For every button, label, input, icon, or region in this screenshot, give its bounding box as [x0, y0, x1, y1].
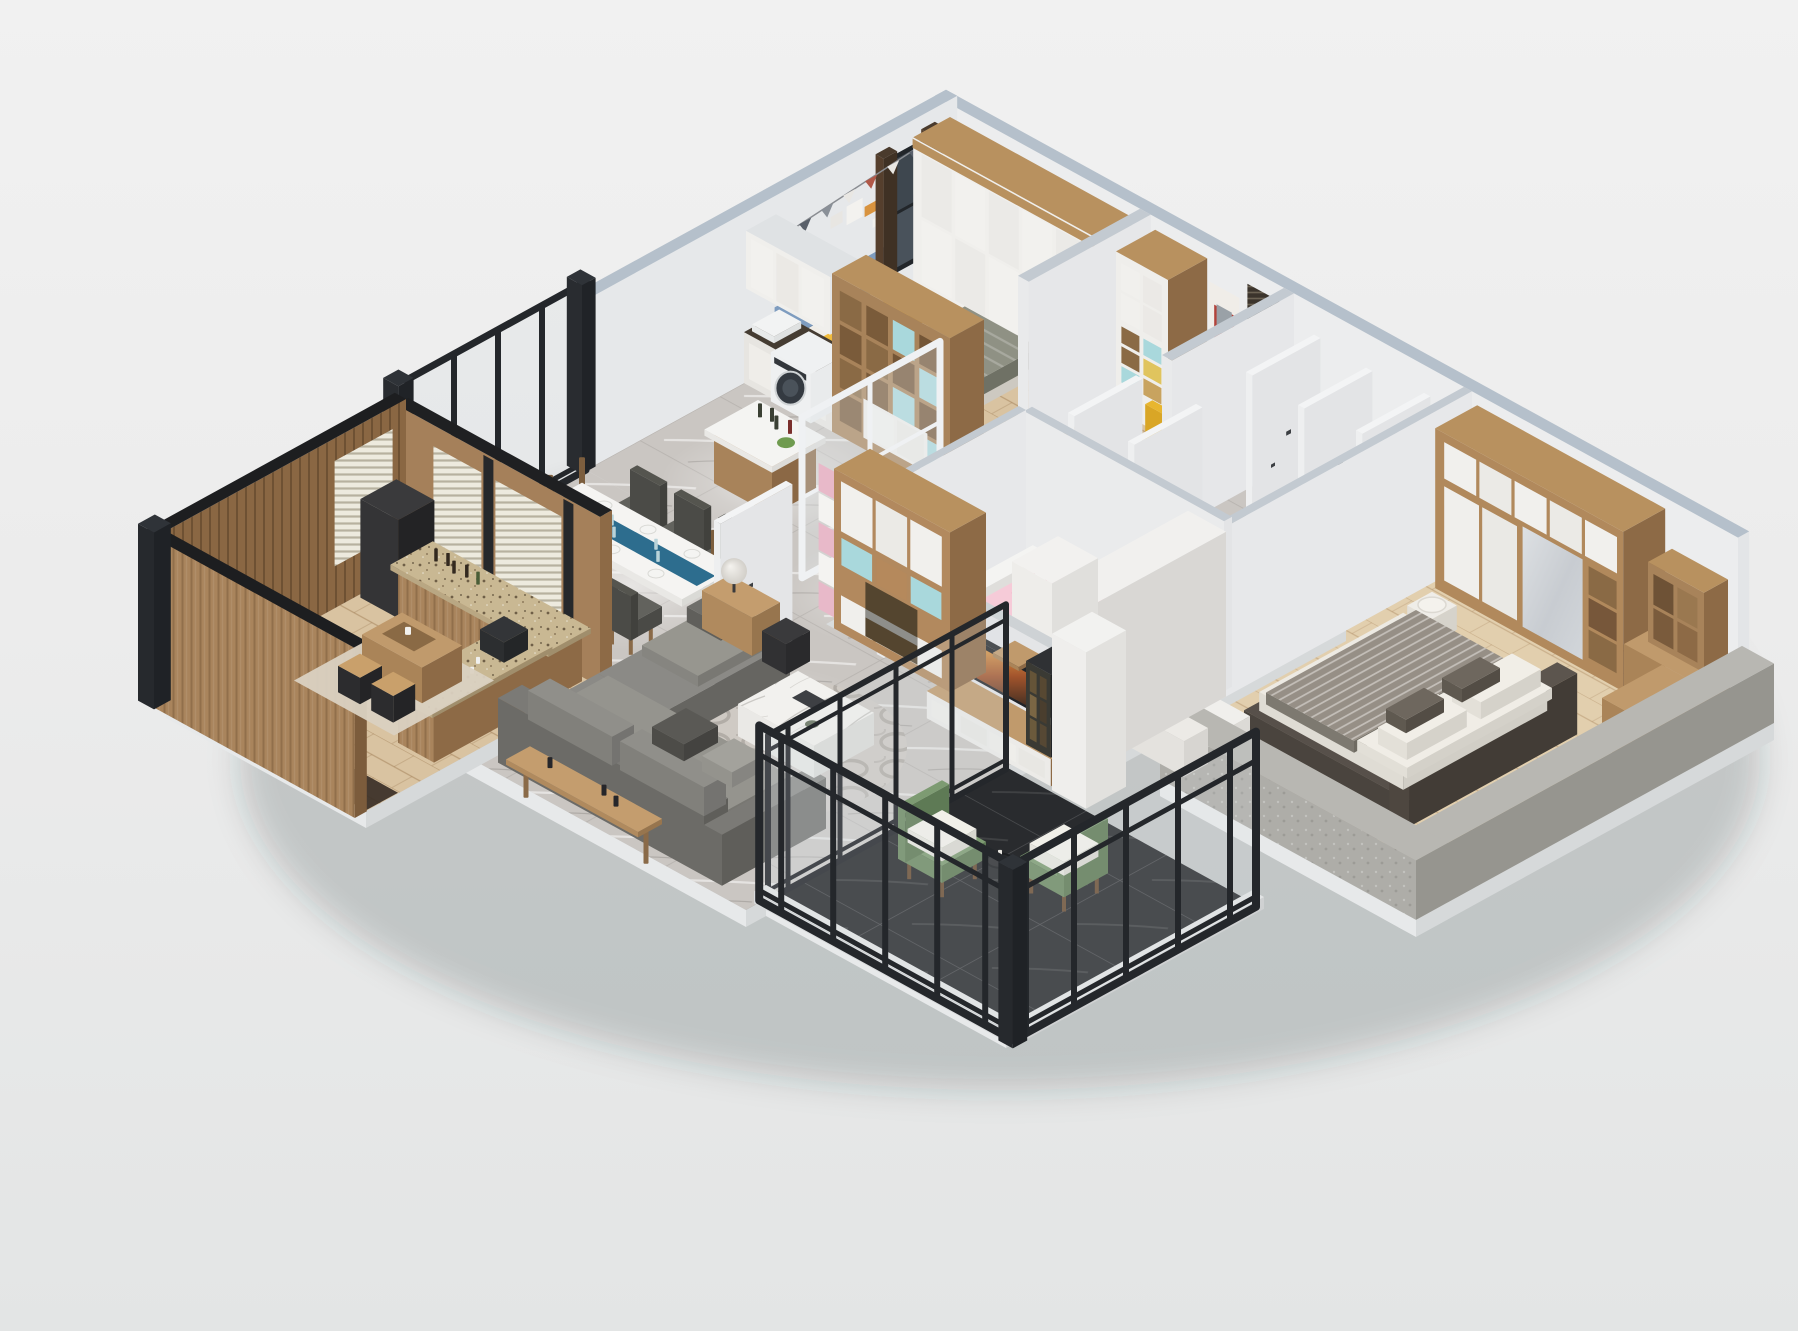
island-wine-bottle-red	[788, 420, 792, 434]
lamp-globe	[721, 558, 747, 584]
island-plant	[777, 437, 795, 448]
render-canvas	[0, 0, 1798, 1331]
master-pouf-top	[1418, 597, 1446, 612]
scene-objects	[138, 90, 1774, 1090]
washer-door-inner	[782, 379, 798, 397]
glazing-column-1	[567, 269, 596, 474]
balcony-corner-post	[998, 854, 1027, 1048]
tea-corner-column	[138, 515, 171, 710]
bar-wine-bottle-green	[476, 572, 480, 585]
tea-teapot	[405, 627, 411, 635]
tv-tall-cabinet	[1052, 612, 1126, 809]
apartment-cutaway-render	[0, 0, 1798, 1331]
